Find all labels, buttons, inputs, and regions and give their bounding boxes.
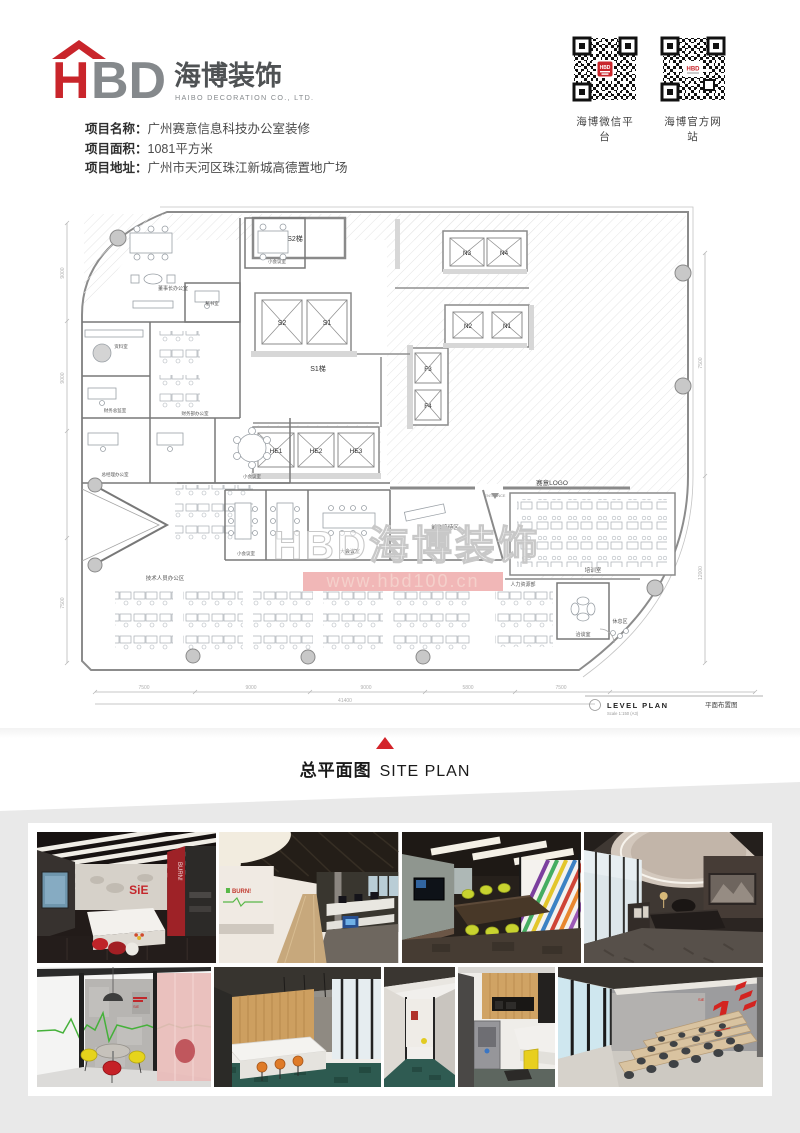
project-name-label: 项目名称： bbox=[85, 122, 148, 136]
caption-triangle-icon bbox=[376, 737, 394, 749]
elevator-n4: N4 bbox=[487, 238, 521, 266]
project-address-row: 项目地址：广州市天河区珠江新城高德置地广场 bbox=[85, 159, 348, 179]
plan-scale: Scale 1:150 (A3) bbox=[607, 711, 639, 716]
project-area-row: 项目面积：1081平方米 bbox=[85, 140, 348, 160]
svg-text:技术人员办公区: 技术人员办公区 bbox=[146, 574, 185, 582]
caption-cn: 总平面图 bbox=[300, 761, 372, 780]
svg-text:HE1: HE1 bbox=[270, 448, 283, 455]
project-name-value: 广州赛意信息科技办公室装修 bbox=[148, 122, 311, 136]
elevator-he3: HE3 bbox=[338, 433, 374, 467]
project-address-value: 广州市天河区珠江新城高德置地广场 bbox=[148, 161, 348, 175]
svg-text:财务总监室: 财务总监室 bbox=[104, 407, 127, 414]
svg-text:小会议室: 小会议室 bbox=[268, 258, 286, 265]
project-address-label: 项目地址： bbox=[85, 161, 148, 175]
svg-text:培训室: 培训室 bbox=[585, 566, 602, 574]
logo-cn: 海博装饰 bbox=[174, 60, 282, 91]
svg-text:N4: N4 bbox=[500, 250, 509, 257]
project-area-value: 1081平方米 bbox=[148, 142, 213, 156]
logo-en: HAIBO DECORATION CO., LTD. bbox=[175, 93, 314, 102]
qr-website-label: 海博官方网站 bbox=[659, 114, 727, 144]
svg-text:洽谈室: 洽谈室 bbox=[575, 631, 590, 638]
burn-logo-text: BURN! bbox=[232, 889, 251, 895]
logo-bd: BD bbox=[91, 52, 166, 110]
photo-open-office: BURN! bbox=[219, 832, 398, 963]
svg-text:S2: S2 bbox=[278, 320, 287, 327]
svg-text:人力资源部: 人力资源部 bbox=[510, 581, 535, 588]
elevator-f3: F3 bbox=[415, 353, 441, 383]
photo-executive-office bbox=[584, 832, 763, 963]
svg-text:5800: 5800 bbox=[462, 685, 473, 691]
svg-text:9000: 9000 bbox=[360, 685, 371, 691]
svg-text:9000: 9000 bbox=[245, 685, 256, 691]
photo-corridor bbox=[384, 967, 455, 1087]
plan-titleblock: LEVEL PLAN Scale 1:150 (A3) 平面布置图 bbox=[585, 696, 763, 716]
titleblock-marker-icon bbox=[590, 700, 601, 711]
photo-gallery: SiE BURN! bbox=[28, 823, 772, 1096]
burn-sign-text: BURN! bbox=[176, 862, 182, 881]
qr-website-center-logo: HBD bbox=[687, 67, 701, 73]
svg-text:7500: 7500 bbox=[138, 685, 149, 691]
brochure-page: H BD 海博装饰 HAIBO DECORATION CO., LTD. bbox=[0, 0, 800, 1133]
caption-en: SITE PLAN bbox=[380, 763, 471, 780]
svg-text:7500: 7500 bbox=[60, 597, 66, 608]
gallery-row-1: SiE BURN! bbox=[37, 832, 763, 963]
sheet-shadow bbox=[0, 728, 800, 738]
watermark-text: HBD海博装饰 bbox=[273, 524, 541, 568]
gallery-row-2: SiE bbox=[37, 967, 763, 1087]
plan-title-cn: 平面布置图 bbox=[705, 700, 738, 709]
pod-logo-text: SiE bbox=[133, 1004, 140, 1009]
svg-text:F3: F3 bbox=[424, 366, 432, 373]
elevator-he2: HE2 bbox=[298, 433, 334, 467]
elevator-s2: S2 bbox=[262, 300, 302, 344]
project-name-row: 项目名称：广州赛意信息科技办公室装修 bbox=[85, 120, 348, 140]
svg-text:HE3: HE3 bbox=[350, 448, 363, 455]
svg-text:HE2: HE2 bbox=[310, 448, 323, 455]
elevator-f4: F4 bbox=[415, 390, 441, 420]
stair-s2-label: S2梯 bbox=[287, 234, 303, 243]
svg-text:12000: 12000 bbox=[698, 566, 704, 580]
qr-website: HBD 海博官方网站 bbox=[659, 36, 727, 144]
svg-text:资料室: 资料室 bbox=[114, 343, 128, 350]
watermark: HBD海博装饰 www.hbd100.cn bbox=[273, 524, 541, 591]
svg-text:秘书室: 秘书室 bbox=[205, 300, 219, 307]
svg-text:N2: N2 bbox=[464, 323, 473, 330]
sie-logo-text: SiE bbox=[129, 883, 148, 897]
svg-text:财务部办公室: 财务部办公室 bbox=[182, 410, 209, 417]
project-info: 项目名称：广州赛意信息科技办公室装修 项目面积：1081平方米 项目地址：广州市… bbox=[85, 120, 348, 179]
svg-text:9000: 9000 bbox=[60, 372, 66, 383]
qr-wechat-label: 海博微信平台 bbox=[571, 114, 639, 144]
svg-text:9000: 9000 bbox=[60, 267, 66, 278]
elevator-n2: N2 bbox=[453, 312, 483, 338]
svg-text:41400: 41400 bbox=[338, 698, 352, 704]
plan-caption: 总平面图SITE PLAN bbox=[0, 756, 770, 781]
svg-text:N1: N1 bbox=[503, 323, 512, 330]
entrance-label: ENTRANCE bbox=[485, 494, 506, 498]
training-logo-text: SiE bbox=[698, 997, 705, 1002]
photo-reception: SiE BURN! bbox=[37, 832, 216, 963]
svg-text:S1: S1 bbox=[323, 320, 332, 327]
project-area-label: 项目面积： bbox=[85, 142, 148, 156]
watermark-url: www.hbd100.cn bbox=[325, 571, 479, 591]
photo-pantry-bar bbox=[214, 967, 381, 1087]
client-logo-label: 赛意LOGO bbox=[536, 478, 568, 487]
svg-text:休息区: 休息区 bbox=[612, 618, 627, 625]
photo-kitchen bbox=[458, 967, 555, 1087]
qr-wechat-image: HBD bbox=[572, 36, 638, 102]
stair-s1-label: S1梯 bbox=[310, 364, 326, 373]
qr-website-image: HBD bbox=[660, 36, 726, 102]
svg-text:小会议室: 小会议室 bbox=[243, 473, 261, 480]
svg-text:董事长办公室: 董事长办公室 bbox=[158, 285, 188, 292]
open-office bbox=[115, 585, 470, 655]
elevator-s1: S1 bbox=[307, 300, 347, 344]
elevator-n3: N3 bbox=[450, 238, 484, 266]
company-logo: H BD 海博装饰 HAIBO DECORATION CO., LTD. bbox=[46, 38, 326, 112]
photo-meeting-pod: SiE bbox=[37, 967, 211, 1087]
elevator-n1: N1 bbox=[492, 312, 522, 338]
logo-h: H bbox=[52, 52, 90, 110]
svg-text:N3: N3 bbox=[463, 250, 472, 257]
photo-training-room: SiE 1 bbox=[558, 967, 763, 1087]
plan-title-en: LEVEL PLAN bbox=[607, 701, 669, 710]
floor-plan: S2 S1 N3 N4 N2 N1 F3 F4 HE1 HE2 HE3 S2梯 … bbox=[55, 193, 765, 738]
qr-wechat: HBD 海博微信平台 bbox=[571, 36, 639, 144]
svg-text:小会议室: 小会议室 bbox=[237, 550, 255, 557]
svg-text:7500: 7500 bbox=[555, 685, 566, 691]
qr-wechat-center-logo: HBD bbox=[600, 65, 611, 71]
photo-meeting-room bbox=[402, 832, 581, 963]
svg-text:7500: 7500 bbox=[698, 357, 704, 368]
svg-text:F4: F4 bbox=[424, 403, 432, 410]
svg-text:总经理办公室: 总经理办公室 bbox=[102, 471, 129, 478]
